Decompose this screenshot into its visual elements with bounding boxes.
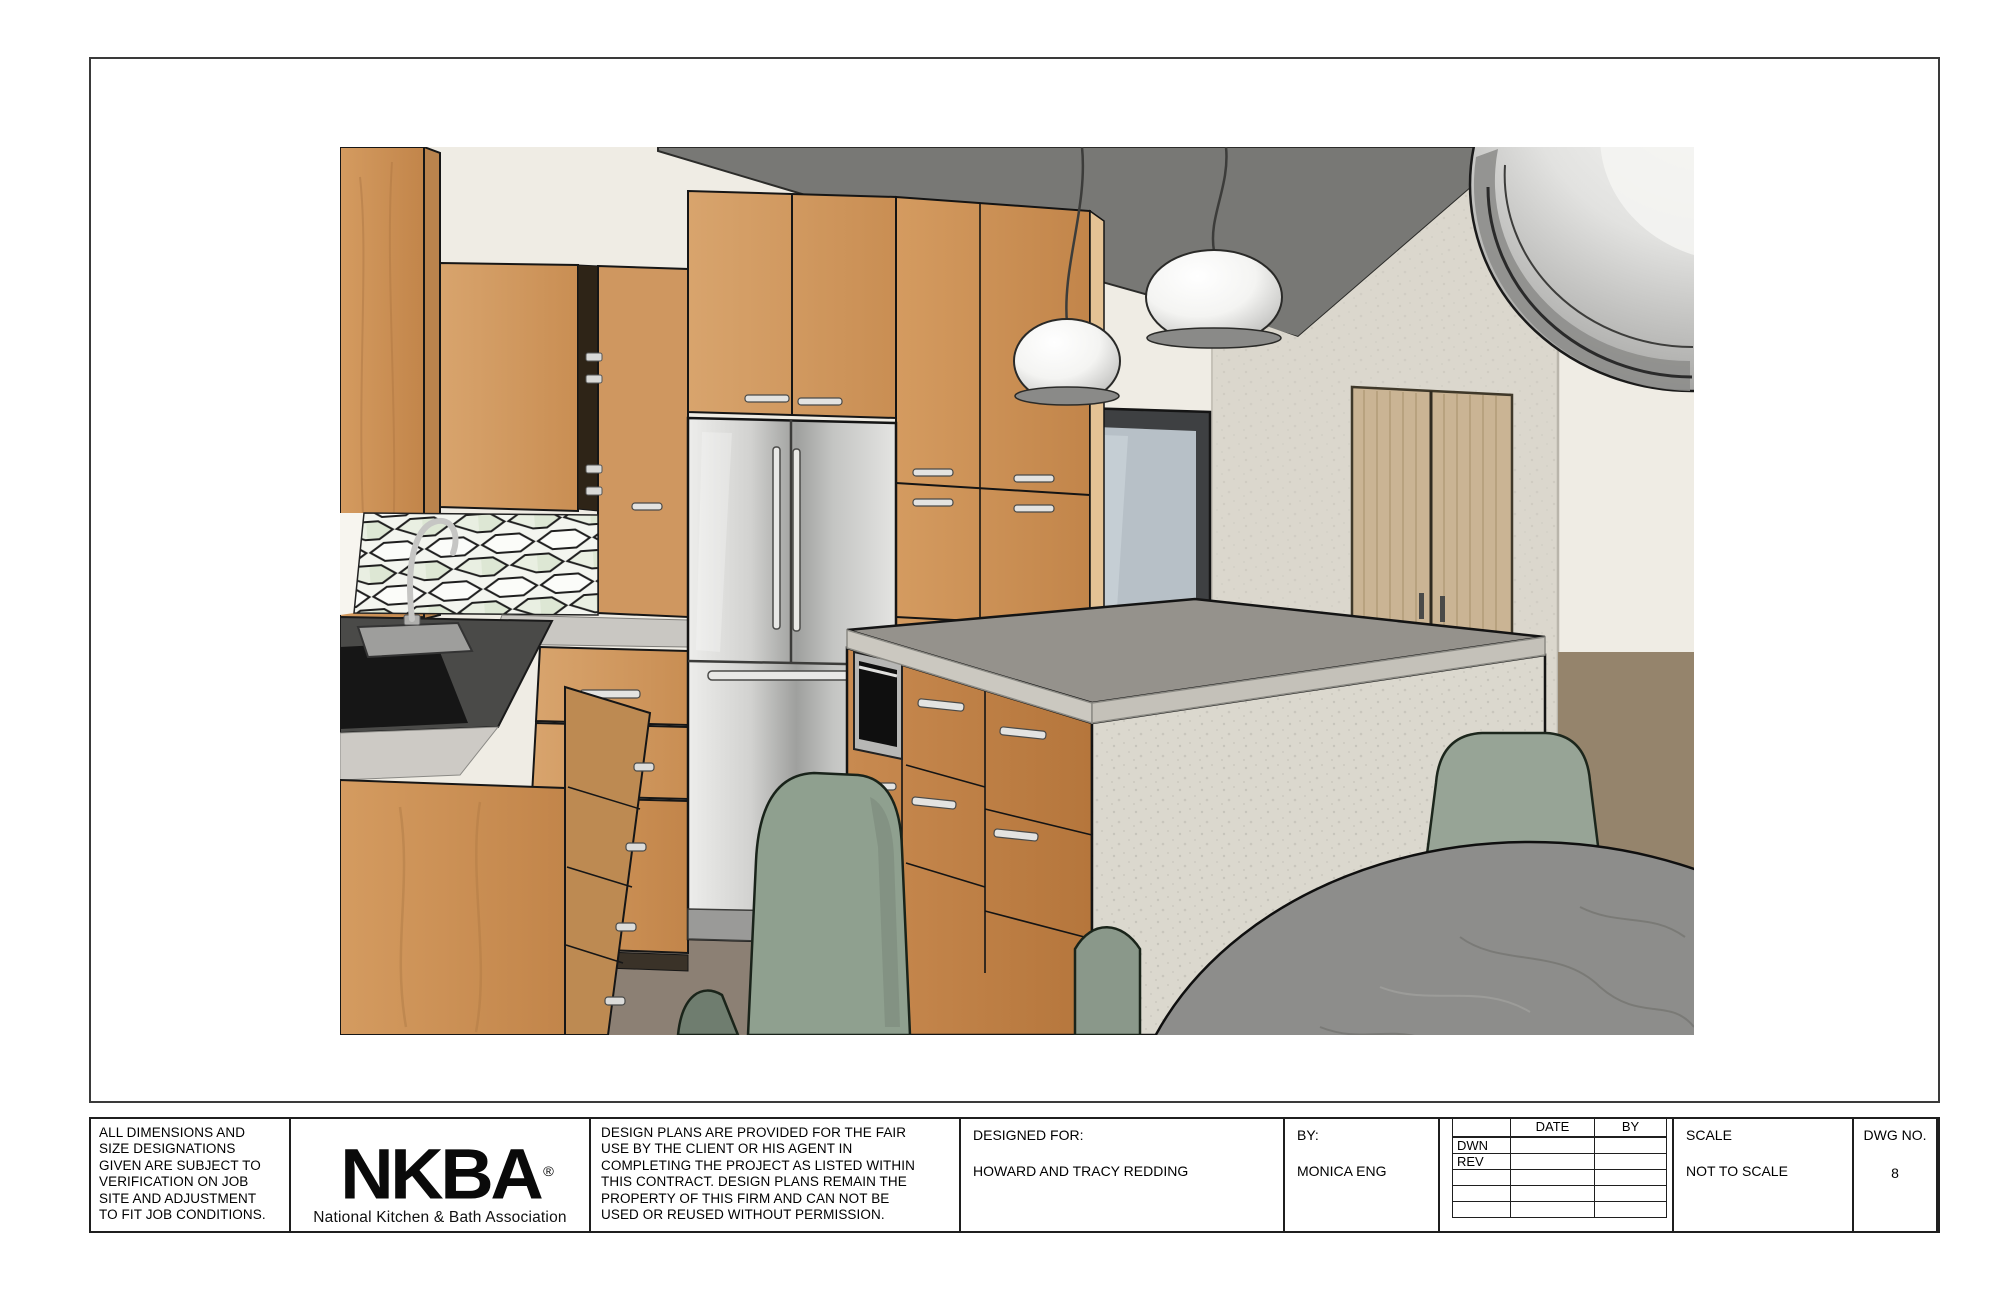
usage-disclaimer: DESIGN PLANS ARE PROVIDED FOR THE FAIR U… <box>591 1119 961 1231</box>
kitchen-rendering <box>340 147 1694 1035</box>
revision-row <box>1453 1185 1667 1201</box>
revision-header-row: DATE BY <box>1453 1118 1667 1137</box>
dwg-no-label: DWG NO. <box>1860 1127 1930 1143</box>
usage-line: THIS CONTRACT. DESIGN PLANS REMAIN THE <box>601 1174 949 1190</box>
scale-label: SCALE <box>1686 1127 1840 1143</box>
dining-chair-side <box>1075 927 1140 1035</box>
usage-line: USE BY THE CLIENT OR HIS AGENT IN <box>601 1141 949 1157</box>
nkba-logo: NKBA® <box>340 1141 540 1206</box>
revision-table-cell: DATE BY DWN REV <box>1440 1119 1674 1231</box>
revision-row-dwn: DWN <box>1453 1137 1667 1154</box>
scale-value: NOT TO SCALE <box>1686 1163 1840 1179</box>
pantry-handle-left <box>1419 593 1424 619</box>
revision-table: DATE BY DWN REV <box>1452 1117 1667 1218</box>
designed-for-label: DESIGNED FOR: <box>973 1127 1271 1143</box>
island-oven <box>854 652 902 759</box>
disclaimer-line: TO FIT JOB CONDITIONS. <box>99 1207 281 1223</box>
by-header: BY <box>1595 1118 1667 1137</box>
disclaimer-line: ALL DIMENSIONS AND <box>99 1125 281 1141</box>
date-header: DATE <box>1511 1118 1595 1137</box>
dwg-no-value: 8 <box>1860 1165 1930 1181</box>
usage-line: COMPLETING THE PROJECT AS LISTED WITHIN <box>601 1158 949 1174</box>
fridge-handle-right <box>793 449 800 631</box>
dwg-no-cell: DWG NO. 8 <box>1854 1119 1938 1231</box>
cabinet-above-fridge <box>688 191 896 418</box>
designed-for-value: HOWARD AND TRACY REDDING <box>973 1163 1271 1179</box>
sink <box>358 623 472 657</box>
disclaimer-line: VERIFICATION ON JOB <box>99 1174 281 1190</box>
revision-row <box>1453 1202 1667 1218</box>
by-value: MONICA ENG <box>1297 1163 1426 1179</box>
design-sheet: { "title_block": { "disclaimer_lines": [… <box>0 0 2000 1294</box>
cabinet-pull <box>632 503 662 510</box>
designed-for-cell: DESIGNED FOR: HOWARD AND TRACY REDDING <box>961 1119 1285 1231</box>
scale-cell: SCALE NOT TO SCALE <box>1674 1119 1854 1231</box>
pantry-handle-right <box>1440 596 1445 622</box>
designed-by-cell: BY: MONICA ENG <box>1285 1119 1440 1231</box>
nkba-logo-cell: NKBA® National Kitchen & Bath Associatio… <box>291 1119 591 1231</box>
title-block: ALL DIMENSIONS AND SIZE DESIGNATIONS GIV… <box>89 1117 1940 1233</box>
disclaimer-line: GIVEN ARE SUBJECT TO <box>99 1158 281 1174</box>
disclaimer-line: SIZE DESIGNATIONS <box>99 1141 281 1157</box>
dimensions-disclaimer: ALL DIMENSIONS AND SIZE DESIGNATIONS GIV… <box>91 1119 291 1231</box>
revision-row-rev: REV <box>1453 1153 1667 1169</box>
usage-line: DESIGN PLANS ARE PROVIDED FOR THE FAIR <box>601 1125 949 1141</box>
by-label: BY: <box>1297 1127 1426 1143</box>
registered-mark: ® <box>543 1139 554 1204</box>
usage-line: PROPERTY OF THIS FIRM AND CAN NOT BE <box>601 1191 949 1207</box>
fridge-handle-left <box>773 447 780 629</box>
backsplash <box>340 513 598 615</box>
usage-line: USED OR REUSED WITHOUT PERMISSION. <box>601 1207 949 1223</box>
revision-row <box>1453 1169 1667 1185</box>
disclaimer-line: SITE AND ADJUSTMENT <box>99 1191 281 1207</box>
